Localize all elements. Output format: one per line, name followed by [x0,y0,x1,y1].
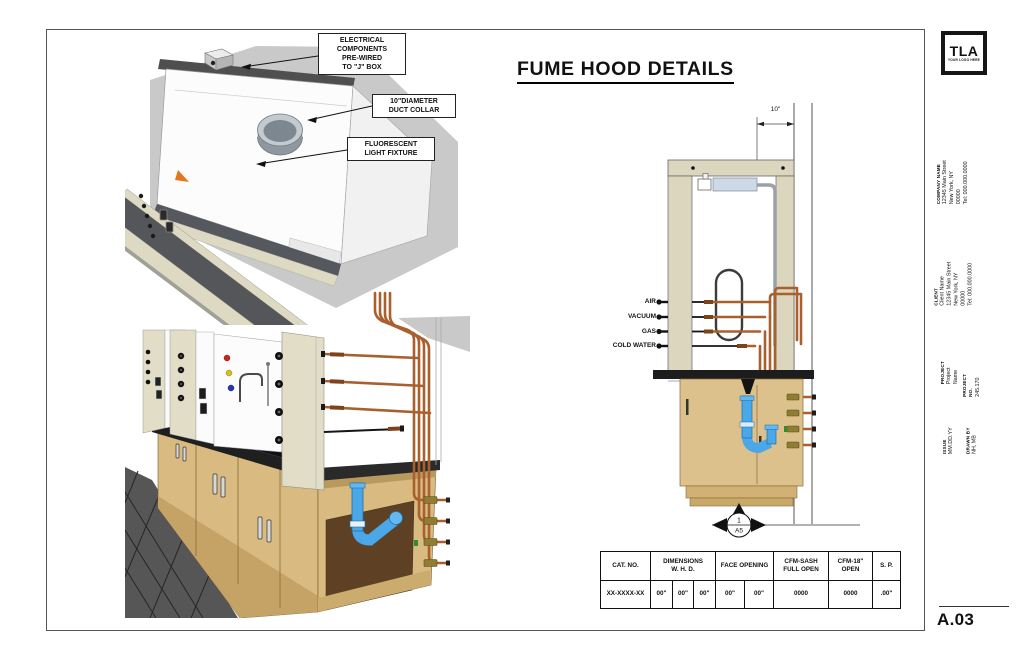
callout-number: 1 [737,518,741,525]
cell-w: 00" [651,581,673,609]
cell-face-1: 00" [716,581,745,609]
page-title: FUME HOOD DETAILS [517,58,734,84]
cell-sp: .00" [873,581,901,609]
drawn-by-label: DRAWN BY [965,428,971,455]
titleblock-project: PROJECT Project Name [938,346,962,398]
titleblock-drawn-by: DRAWN BY NH, MB [958,420,986,462]
col-cat-no: CAT. NO. [601,552,651,581]
col-cfm-full: CFM-SASH FULL OPEN [774,552,829,581]
issue-value: MM.DD.YY [948,428,955,455]
copper-fittings [330,354,344,408]
cell-d: 00" [694,581,716,609]
callout-sheet: A5 [735,528,743,535]
service-valves [656,299,668,348]
logo-text: TLA [950,45,979,58]
titleblock-project-no: PROJECT NO. 245.170 [960,362,984,408]
yellow-knob [226,370,232,376]
logo-tagline: YOUR LOGO HERE [948,58,980,62]
table-data-row: XX-XXXX-XX 00" 00" 00" 00" 00" 0000 0000… [601,581,901,609]
project-no-label: PROJECT NO. [962,373,975,397]
cell-h: 00" [673,581,694,609]
cell-cfm-full: 0000 [774,581,829,609]
cell-face-2: 00" [745,581,774,609]
view-lab-perspective-3d [125,290,470,618]
green-fitting [414,540,418,546]
company-logo: TLA YOUR LOGO HERE [941,31,987,75]
red-knob [224,355,230,361]
col-sp: S. P. [873,552,901,581]
project-no-value: 245.170 [975,373,982,397]
callout-duct-collar: 10"DIAMETER DUCT COLLAR [372,94,456,118]
titleblock-company: COMPANY NAME 12345 Main Street New York,… [930,138,976,224]
titleblock-issue: ISSUE MM.DD.YY [936,420,960,462]
callout-light-fixture: FLUORESCENT LIGHT FIXTURE [347,137,435,161]
issue-label: ISSUE [941,428,947,455]
hood-schedule-table: CAT. NO. DIMENSIONS W. H. D. FACE OPENIN… [600,551,901,609]
remote-valve-rod [324,429,398,432]
table-header-row: CAT. NO. DIMENSIONS W. H. D. FACE OPENIN… [601,552,901,581]
service-label-gas: GAS [594,328,656,336]
project-name: Project Name [946,360,960,384]
drawn-by-value: NH, MB [972,428,979,455]
client-address: Client Name 12345 Main Street New York, … [940,258,975,306]
titleblock-client: CLIENT Client Name 12345 Main Street New… [930,240,978,324]
callout-electrical-components: ELECTRICAL COMPONENTS PRE-WIRED TO "J" B… [318,33,406,75]
sheet-number: A.03 [937,610,974,630]
blue-knob [228,385,234,391]
service-label-vacuum: VACUUM [594,313,656,321]
duct-collar [258,114,303,155]
fume-hood-middle [170,330,214,444]
col-cfm-18: CFM-18" OPEN [829,552,873,581]
cell-cfm-18: 0000 [829,581,873,609]
dimension-label: 10" [757,106,794,113]
col-face-opening: FACE OPENING [716,552,774,581]
company-address: 12345 Main Street New York, NY 00000 Tel… [942,158,970,204]
cell-cat-no: XX-XXXX-XX [601,581,651,609]
sheet-number-divider [939,606,1009,607]
service-label-air: AIR [594,298,656,306]
exhaust-duct [757,185,775,346]
col-dimensions: DIMENSIONS W. H. D. [651,552,716,581]
service-label-cold-water: COLD WATER [594,342,656,350]
view-hood-top-3d [125,30,470,325]
section-callout: 1 A5 [712,503,860,537]
backdrop-wedge [398,316,470,352]
faucet-loop [716,270,742,340]
